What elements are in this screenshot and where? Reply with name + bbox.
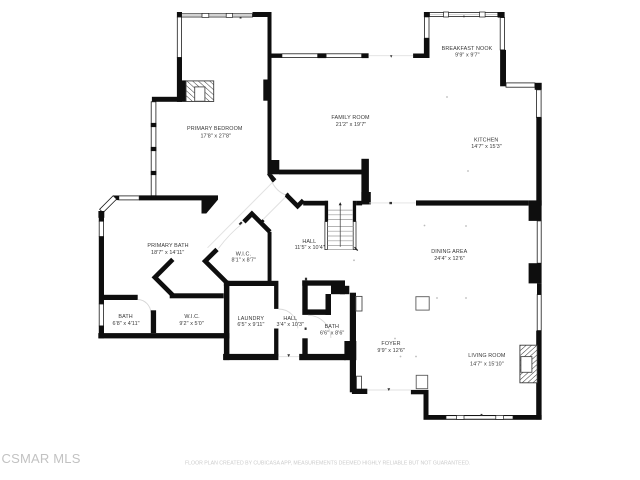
svg-text:24'4" x 12'6": 24'4" x 12'6" (434, 256, 465, 262)
svg-text:14'7" x 15'3": 14'7" x 15'3" (471, 144, 502, 150)
svg-text:CSMAR MLS: CSMAR MLS (2, 451, 81, 466)
svg-text:6'5" x 9'11": 6'5" x 9'11" (237, 322, 264, 328)
svg-text:DINING AREA: DINING AREA (431, 249, 467, 255)
svg-text:18'7" x 14'11": 18'7" x 14'11" (151, 250, 184, 256)
svg-text:HALL: HALL (302, 239, 316, 245)
svg-text:BREAKFAST NOOK: BREAKFAST NOOK (442, 46, 493, 52)
svg-text:LIVING ROOM: LIVING ROOM (468, 353, 506, 359)
svg-text:PRIMARY BEDROOM: PRIMARY BEDROOM (187, 126, 243, 132)
svg-text:3'4" x 10'3": 3'4" x 10'3" (277, 322, 305, 328)
svg-text:KITCHEN: KITCHEN (474, 137, 499, 143)
svg-text:21'2" x 19'7": 21'2" x 19'7" (336, 122, 367, 128)
svg-text:9'2" x 5'0": 9'2" x 5'0" (179, 321, 203, 327)
svg-text:14'7" x 15'10": 14'7" x 15'10" (470, 362, 504, 368)
svg-text:FLOOR PLAN CREATED BY CUBICASA: FLOOR PLAN CREATED BY CUBICASA APP, MEAS… (185, 461, 470, 467)
svg-text:9'9" x 9'7": 9'9" x 9'7" (455, 52, 479, 58)
svg-text:PRIMARY BATH: PRIMARY BATH (147, 243, 188, 249)
svg-text:FOYER: FOYER (381, 341, 400, 347)
svg-text:FAMILY ROOM: FAMILY ROOM (331, 115, 370, 121)
svg-text:BATH: BATH (118, 314, 132, 320)
svg-text:6'6" x 8'6": 6'6" x 8'6" (320, 331, 344, 337)
svg-text:W.I.C.: W.I.C. (184, 314, 199, 320)
svg-text:11'5" x 10'4": 11'5" x 10'4" (295, 245, 325, 251)
svg-text:W.I.C.: W.I.C. (236, 251, 251, 257)
svg-text:17'8" x 27'8": 17'8" x 27'8" (200, 134, 231, 140)
svg-text:9'9" x 12'6": 9'9" x 12'6" (377, 348, 405, 354)
svg-text:BATH: BATH (325, 324, 339, 330)
svg-text:8'1" x 8'7": 8'1" x 8'7" (231, 258, 255, 264)
svg-text:6'8" x 4'11": 6'8" x 4'11" (113, 321, 140, 327)
